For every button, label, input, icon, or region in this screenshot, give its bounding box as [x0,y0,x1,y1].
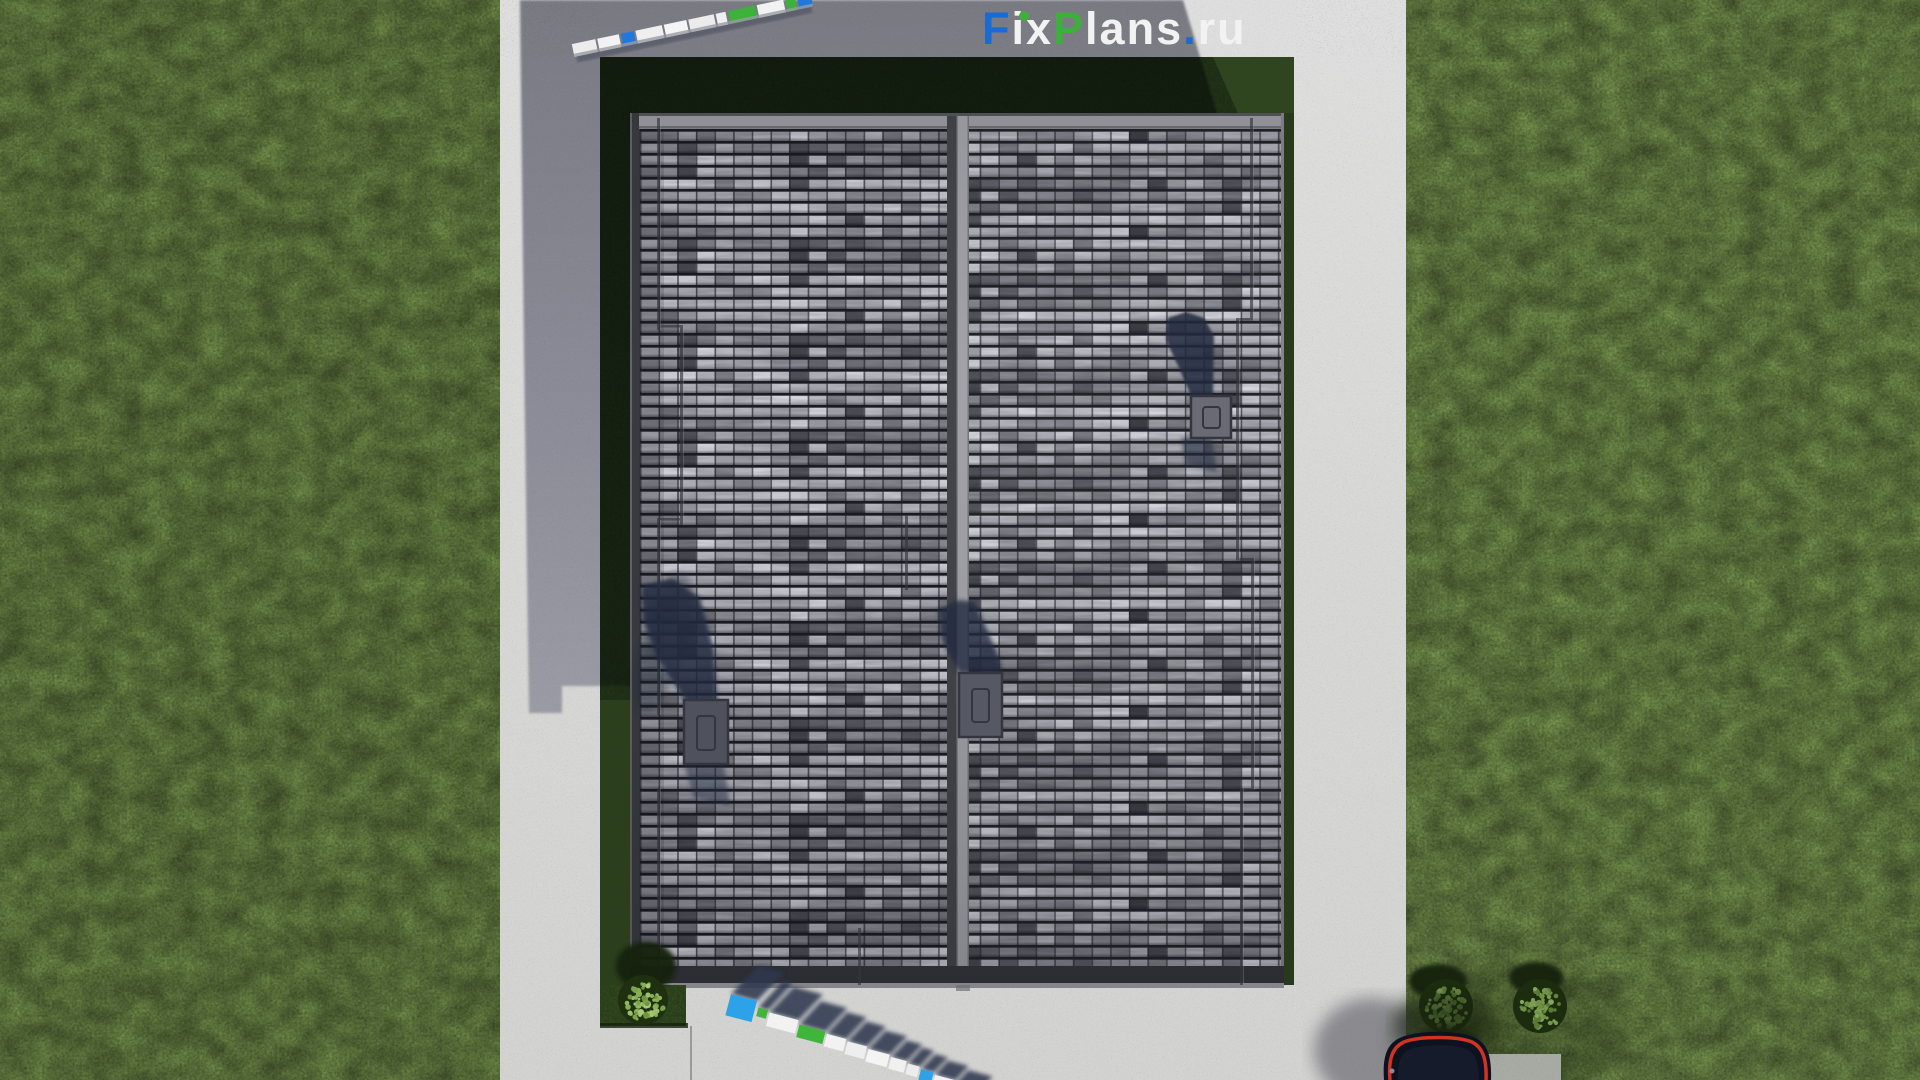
svg-text:FixPlans.ru: FixPlans.ru [982,3,1247,54]
